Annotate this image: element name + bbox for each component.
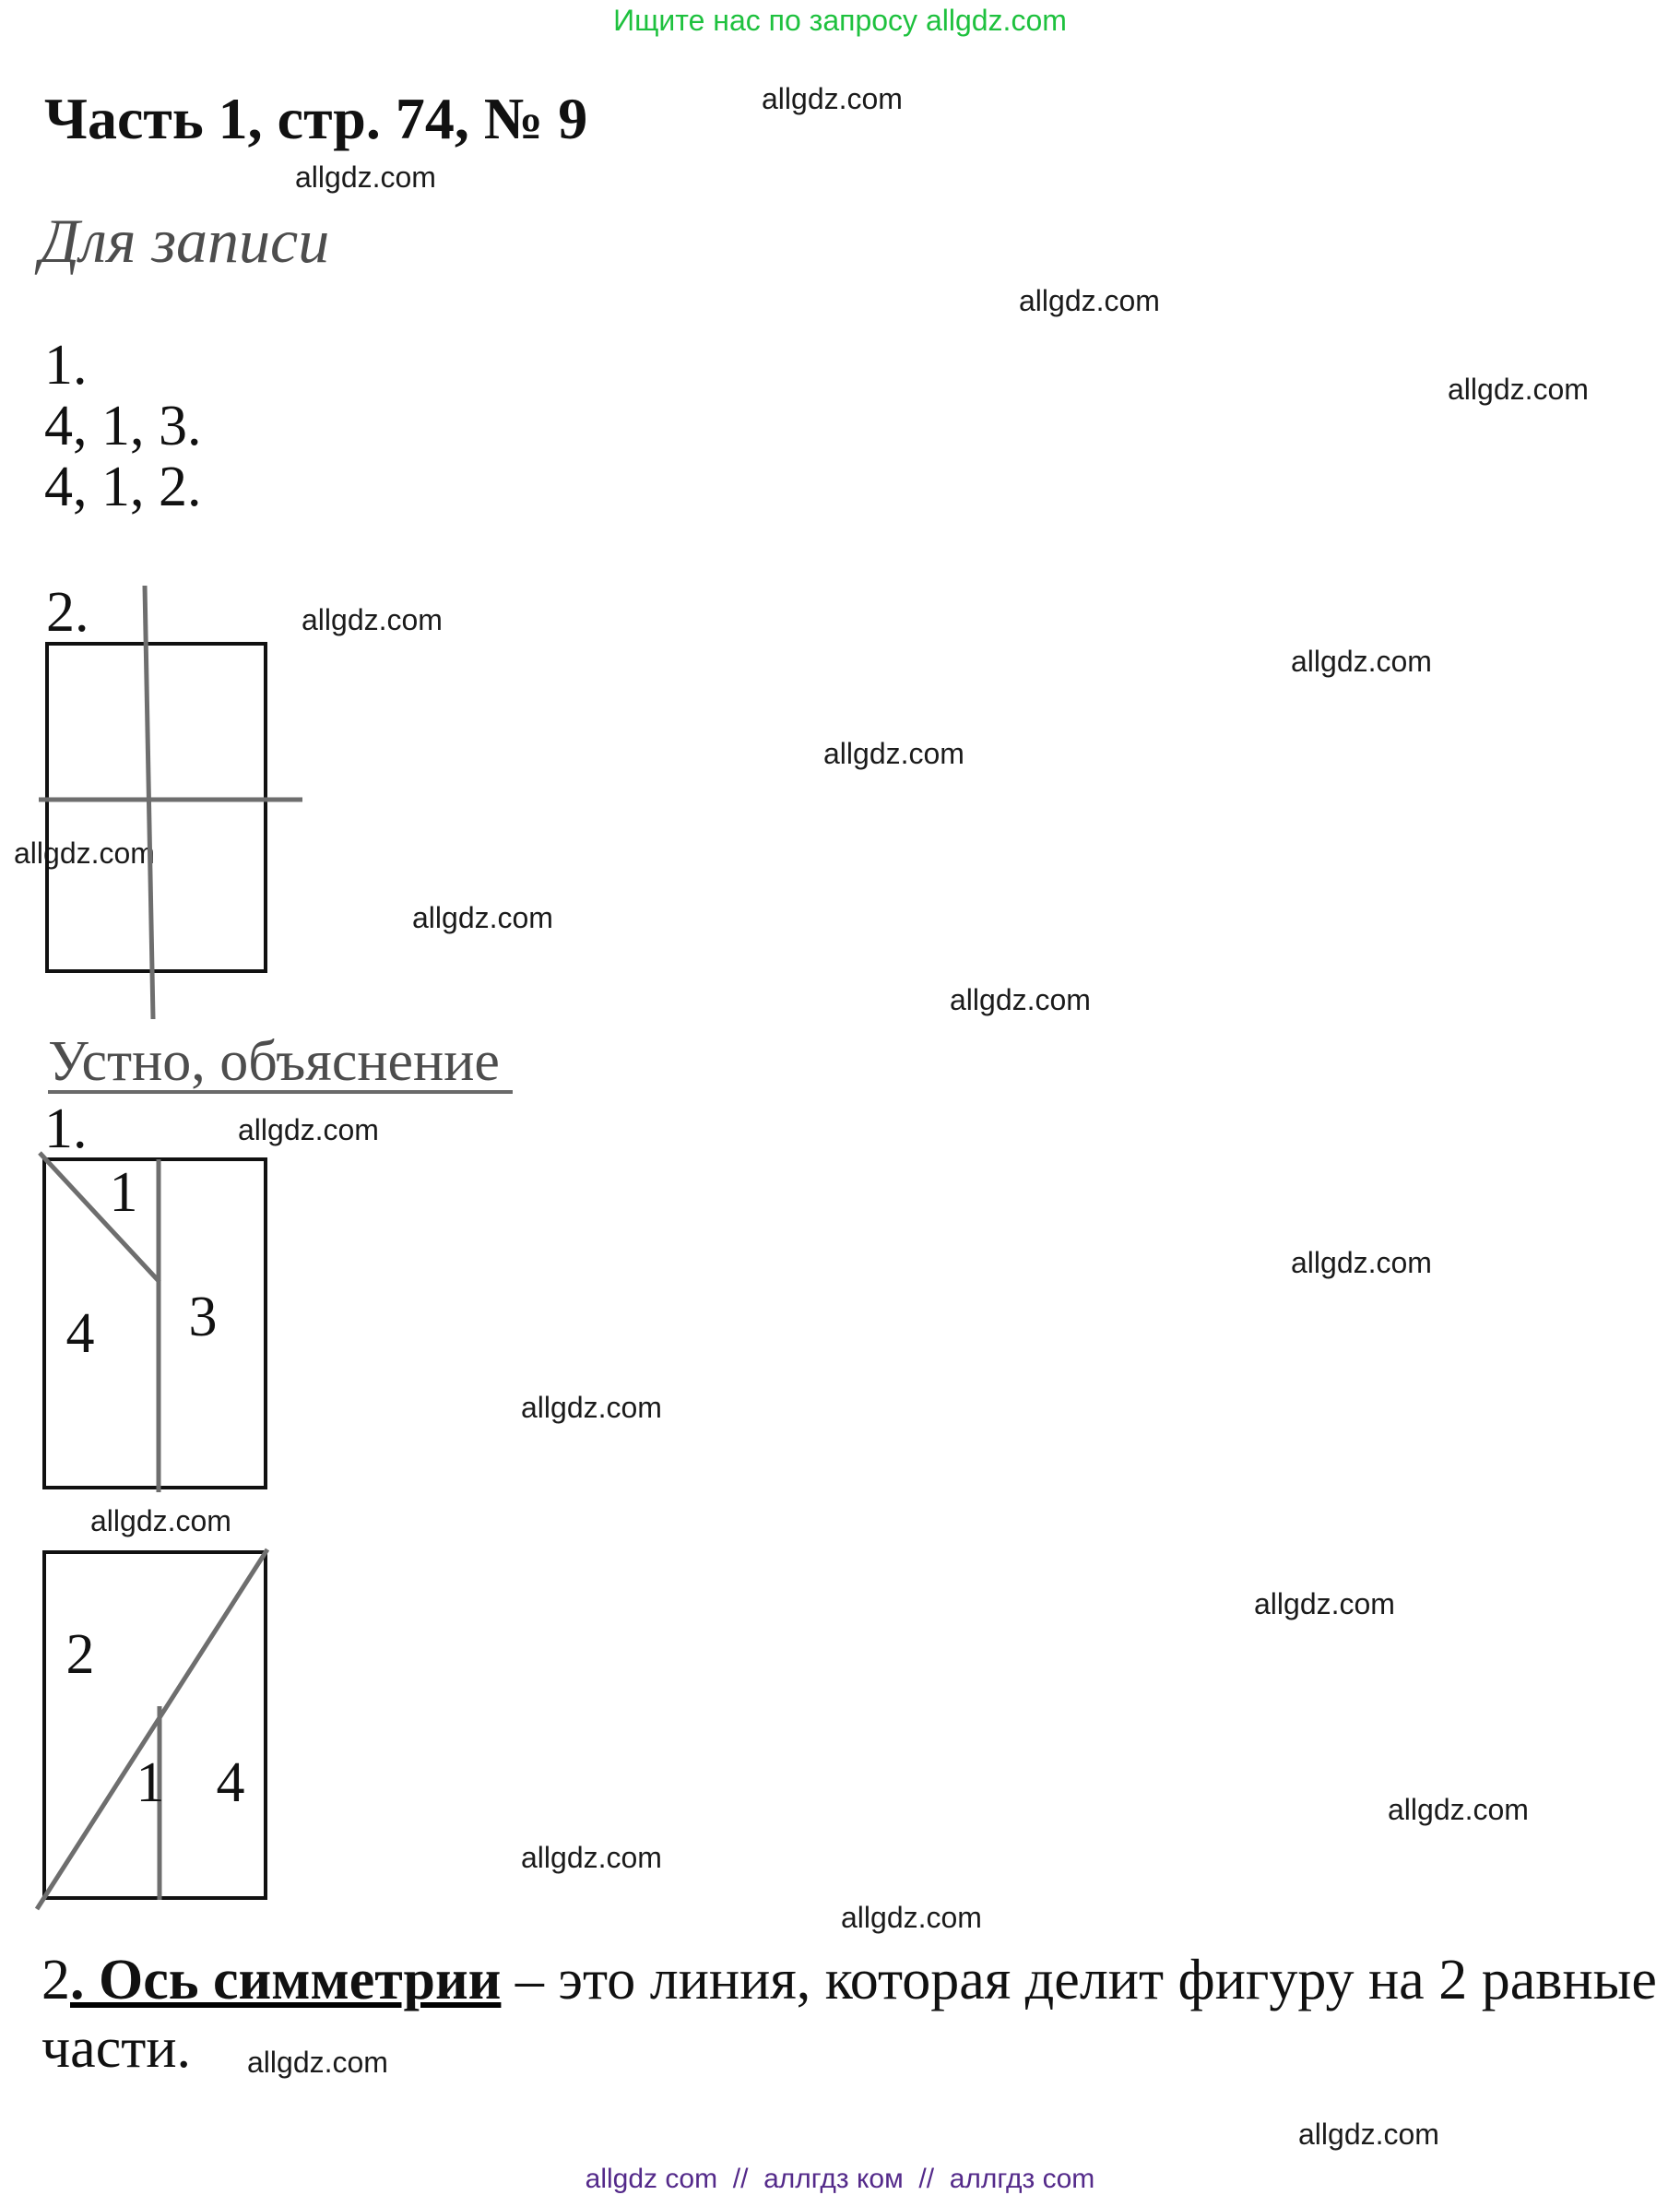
definition-term: . Ось симметрии (70, 1949, 501, 2011)
region-label: 4 (66, 1302, 95, 1365)
diagonal-line (40, 1153, 160, 1282)
watermark: allgdz.com (1291, 647, 1432, 676)
definition-text: – это линия, которая делит фигуру на 2 р… (501, 1949, 1656, 2011)
region-label: 4 (217, 1751, 245, 1814)
watermark: allgdz.com (1298, 2119, 1439, 2149)
definition-paragraph: 2. Ось симметрии – это линия, которая де… (41, 1946, 1657, 2082)
watermark: allgdz.com (823, 739, 964, 768)
section-heading-written: Для записи (40, 209, 329, 272)
answer-lines: 1. 4, 1, 3. 4, 1, 2. (44, 335, 202, 517)
answer-line: 1. (44, 335, 202, 396)
watermark: allgdz.com (521, 1393, 662, 1422)
section-heading-oral: Устно, объяснение (48, 1035, 513, 1094)
watermark: allgdz.com (1388, 1795, 1529, 1824)
region-label: 2 (66, 1623, 95, 1686)
watermark: allgdz.com (950, 985, 1091, 1014)
watermark: allgdz.com (238, 1115, 379, 1145)
region-label: 1 (136, 1751, 165, 1814)
watermark: allgdz.com (412, 903, 553, 932)
region-label: 1 (110, 1161, 138, 1224)
watermark: allgdz.com (90, 1506, 231, 1536)
figure1-rectangle-with-axes (28, 579, 314, 1026)
watermark: allgdz.com (302, 605, 443, 635)
promo-banner: Ищите нас по запросу allgdz.com (0, 4, 1680, 38)
watermark: allgdz.com (1291, 1248, 1432, 1277)
watermark: allgdz.com (1019, 286, 1160, 315)
vertical-axis-line (145, 586, 153, 1019)
watermark: allgdz.com (841, 1903, 982, 1932)
figure3-partitioned-rectangle: 2 1 4 (23, 1538, 327, 1916)
watermark: allgdz.com (1448, 374, 1589, 404)
definition-line-2: части. (41, 2014, 1657, 2082)
answer-line: 4, 1, 2. (44, 457, 202, 517)
watermark: allgdz.com (762, 84, 903, 113)
region-label: 3 (189, 1286, 218, 1348)
diagonal-line (37, 1549, 267, 1909)
watermark: allgdz.com (295, 162, 436, 192)
definition-line-1: 2. Ось симметрии – это линия, которая де… (41, 1946, 1657, 2014)
figure2-partitioned-rectangle: 1 4 3 (26, 1144, 321, 1503)
page-title: Часть 1, стр. 74, № 9 (44, 89, 587, 148)
answer-line: 4, 1, 3. (44, 396, 202, 457)
footer-links: allgdz com // аллгдз ком // аллгдз com (0, 2164, 1680, 2195)
rectangle-outline (47, 644, 266, 971)
watermark: allgdz.com (1254, 1589, 1395, 1619)
definition-number: 2 (41, 1949, 70, 2011)
watermark: allgdz.com (521, 1843, 662, 1872)
